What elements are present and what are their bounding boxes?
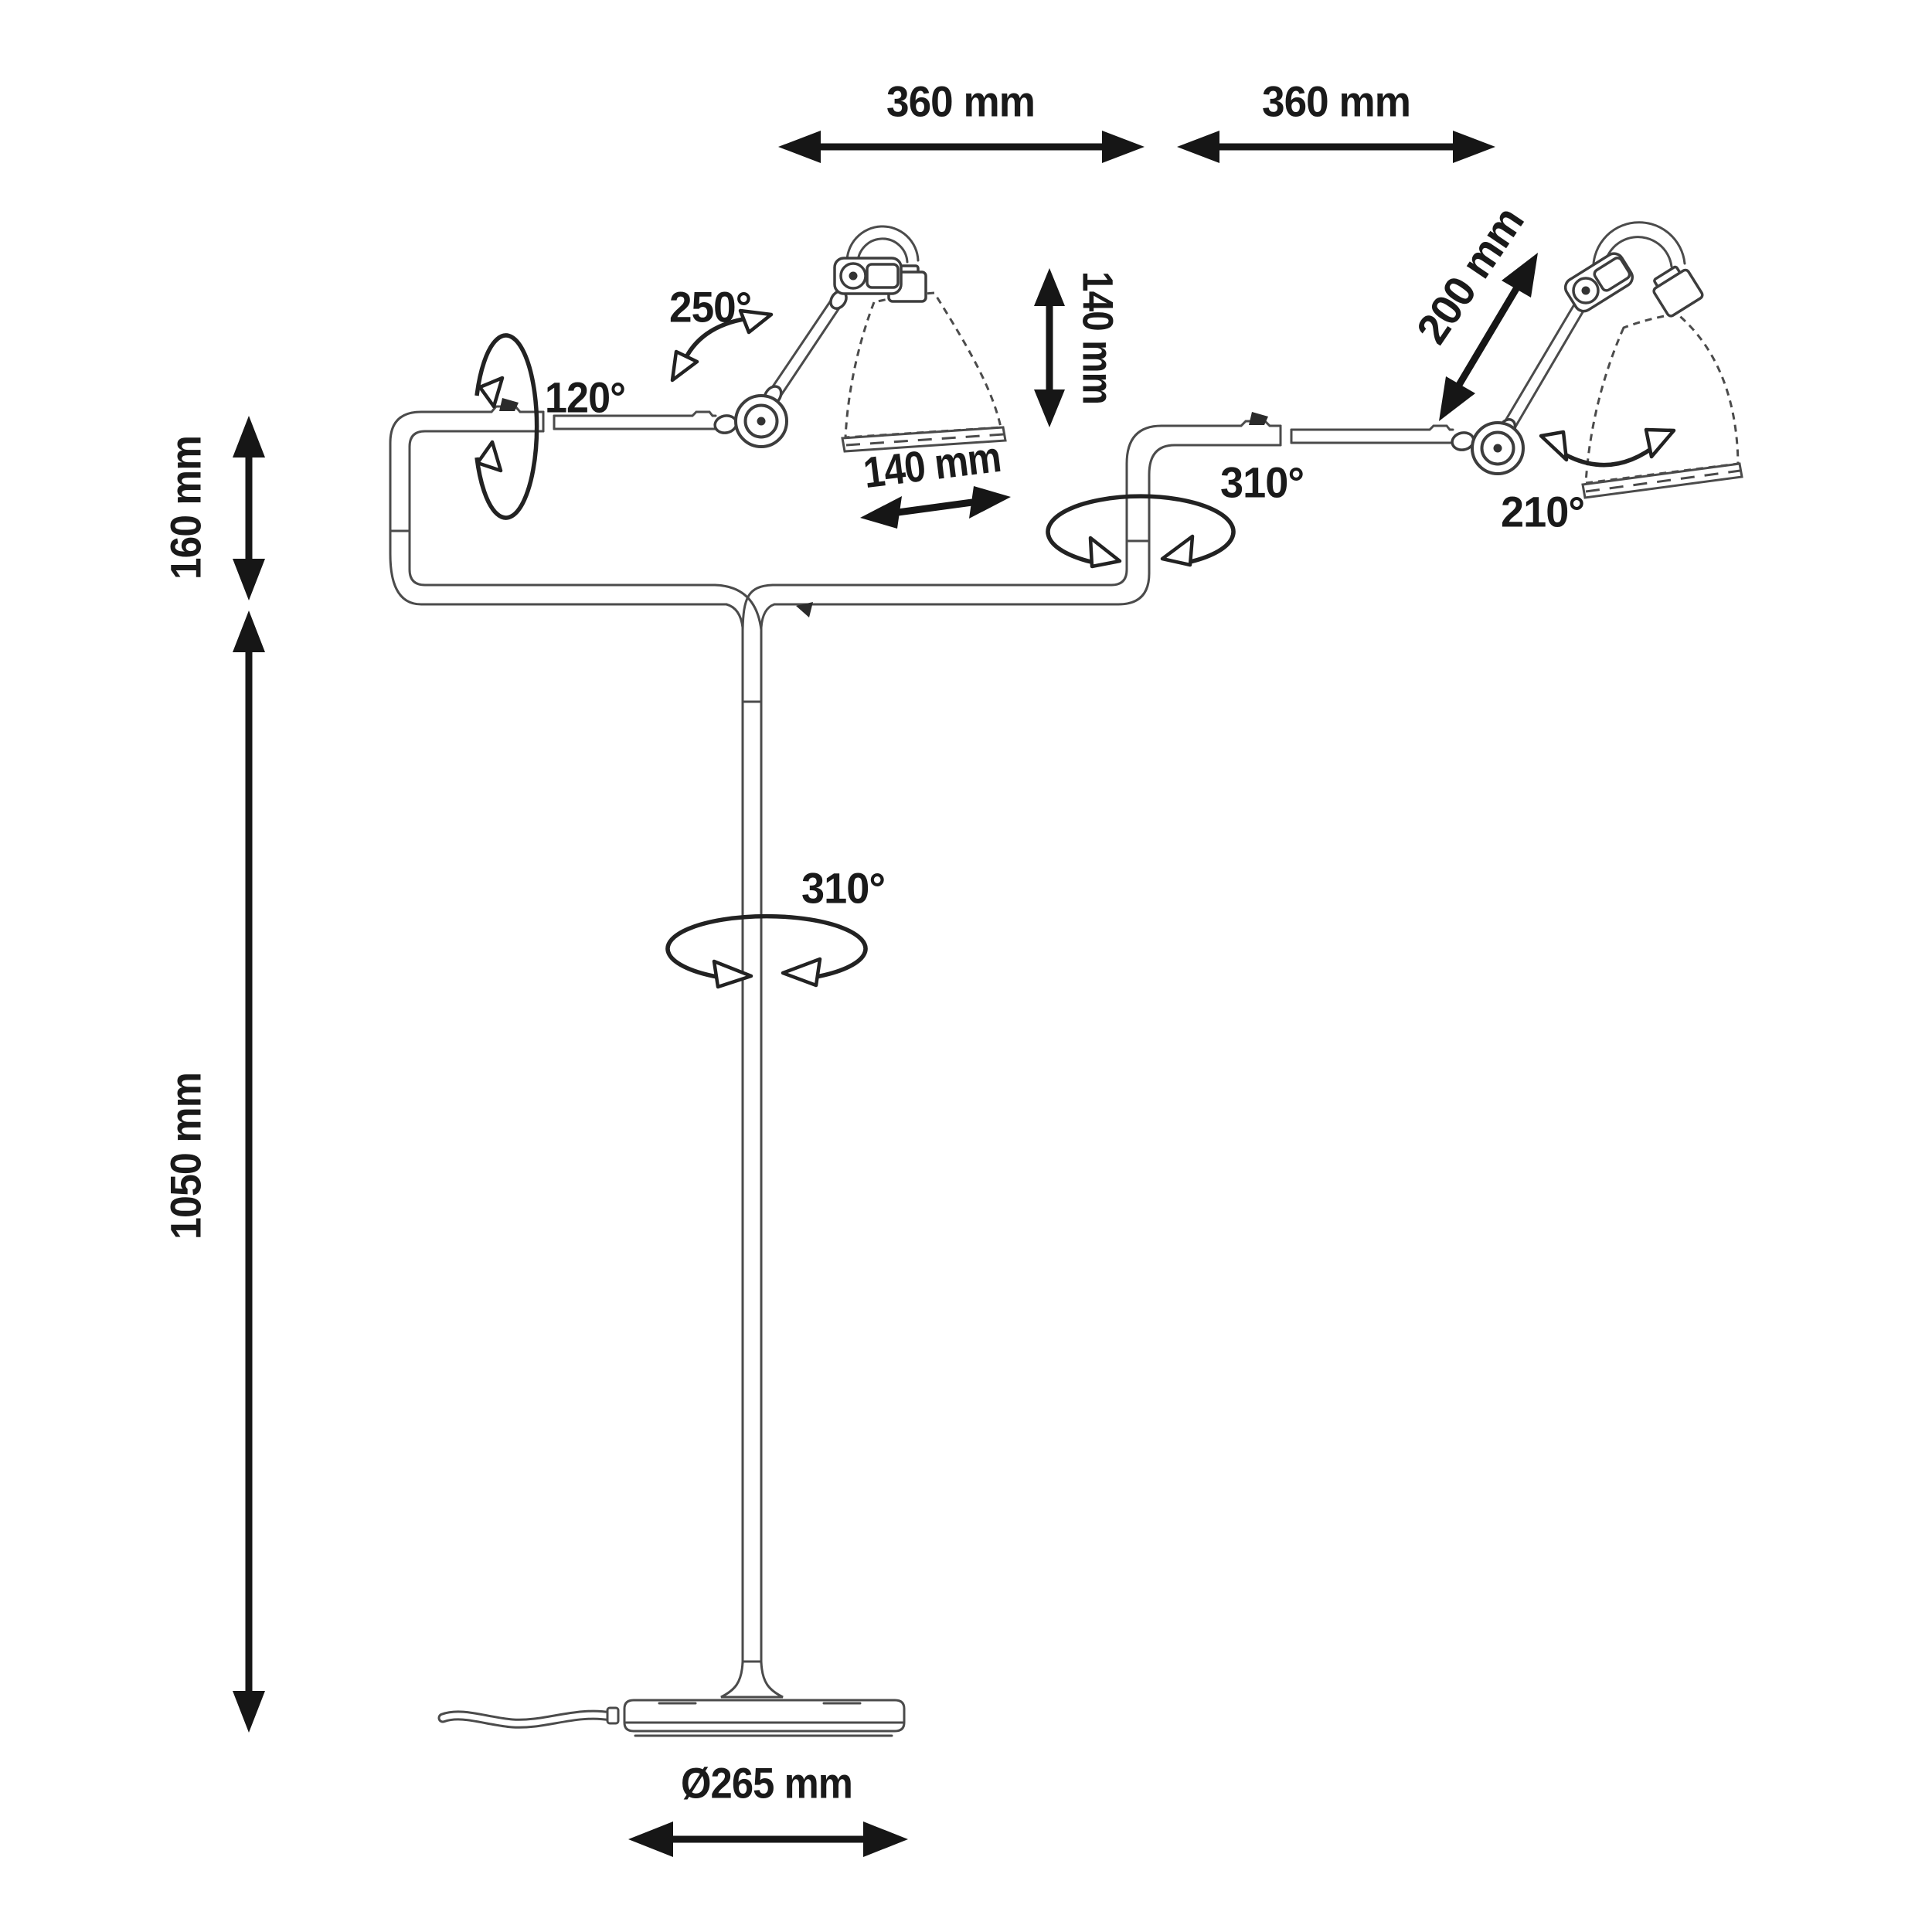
diagram-canvas: 360 mm 360 mm 160 mm 1050 mm 140 mm 140 … [0, 0, 1932, 1932]
right-shade [1583, 314, 1742, 498]
left-shade [842, 293, 1005, 451]
shade-height-label: 140 mm [1074, 271, 1123, 404]
power-cable [443, 1715, 611, 1723]
rotation-indicators [477, 311, 1674, 987]
rotation-arm-axis-label: 120° [545, 373, 625, 422]
cable-gland [607, 1708, 618, 1723]
rotation-arm-riser-label: 310° [1220, 458, 1304, 507]
rotation-elbow-label: 250° [669, 283, 751, 332]
pole-height-label: 1050 mm [162, 1073, 210, 1240]
dim-pole-height [233, 611, 265, 1733]
span-right-label: 360 mm [1262, 77, 1410, 126]
dim-span-right [1177, 131, 1495, 163]
base-trumpet [721, 1662, 783, 1697]
dim-upper-height [233, 416, 265, 600]
dim-shade-height [1034, 268, 1065, 427]
left-elbow-joint [713, 396, 787, 447]
pole [743, 626, 761, 1663]
pole-rotation-indicator [668, 917, 866, 987]
rotation-shade-label: 210° [1501, 488, 1584, 536]
floor-lamp-drawing [390, 223, 1742, 1736]
upper-height-label: 160 mm [162, 436, 210, 580]
base-disc [607, 1662, 904, 1736]
arm-axis-rotation-indicator [477, 335, 537, 518]
dim-span-left [778, 131, 1145, 163]
right-elbow-joint [1451, 423, 1523, 474]
rotation-pole-label: 310° [801, 864, 885, 913]
dim-base-diameter [628, 1821, 908, 1857]
span-left-label: 360 mm [886, 77, 1035, 126]
base-diameter-label: Ø265 mm [681, 1759, 852, 1808]
arm-riser-rotation-indicator [1048, 496, 1233, 566]
